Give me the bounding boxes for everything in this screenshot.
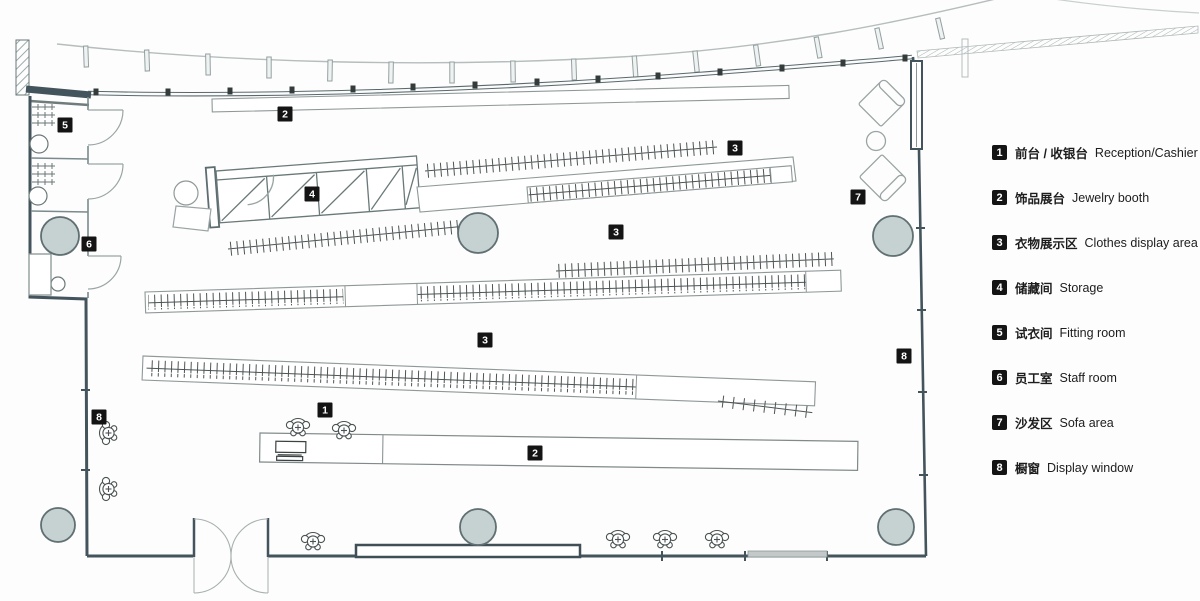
floor-plan-page: 1 2 2 3 3 3 4 5 6 7 8 8 1 前台 / 收银台 Recep… bbox=[0, 0, 1200, 601]
legend-label-en: Reception/Cashier bbox=[1095, 146, 1198, 160]
clothes-rack bbox=[142, 356, 815, 406]
clothes-rack bbox=[227, 219, 464, 256]
legend-label-zh: 沙发区 bbox=[1015, 413, 1053, 432]
legend-label-zh: 试衣间 bbox=[1015, 323, 1053, 342]
column bbox=[873, 216, 913, 256]
chair-icon bbox=[100, 421, 117, 444]
legend-label-en: Staff room bbox=[1060, 371, 1117, 385]
column bbox=[460, 509, 496, 545]
plan-marker-3: 3 bbox=[728, 141, 743, 156]
canopy-facade bbox=[57, 0, 1199, 83]
legend-item: 1 前台 / 收银台 Reception/Cashier bbox=[992, 145, 1198, 160]
legend-label-zh: 饰品展台 bbox=[1015, 188, 1065, 207]
fitting-rooms-staff-room bbox=[29, 97, 123, 298]
column bbox=[41, 508, 75, 542]
plan-marker-3c: 3 bbox=[478, 333, 493, 348]
plan-marker-8: 8 bbox=[92, 410, 107, 425]
legend-item: 2 饰品展台 Jewelry booth bbox=[992, 190, 1198, 205]
legend-marker: 2 bbox=[992, 190, 1007, 205]
plan-marker-1: 1 bbox=[318, 403, 333, 418]
legend: 1 前台 / 收银台 Reception/Cashier 2 饰品展台 Jewe… bbox=[992, 145, 1198, 475]
chair-icon bbox=[606, 531, 629, 548]
plan-marker-7: 7 bbox=[851, 190, 866, 205]
legend-marker: 7 bbox=[992, 415, 1007, 430]
sofa-table bbox=[867, 132, 886, 151]
fitting-room-doors bbox=[88, 110, 123, 289]
legend-item: 8 橱窗 Display window bbox=[992, 460, 1198, 475]
chair-icon bbox=[705, 531, 728, 548]
left-wall bbox=[30, 96, 87, 556]
legend-label-en: Storage bbox=[1060, 281, 1104, 295]
legend-label-zh: 前台 / 收银台 bbox=[1015, 143, 1088, 162]
column bbox=[458, 213, 498, 253]
chair-icon bbox=[100, 477, 117, 500]
legend-item: 5 试衣间 Fitting room bbox=[992, 325, 1198, 340]
column bbox=[878, 509, 914, 545]
plan-marker-6: 6 bbox=[82, 237, 97, 252]
legend-marker: 5 bbox=[992, 325, 1007, 340]
staff-counter bbox=[29, 254, 51, 295]
chair-icon bbox=[301, 533, 324, 550]
legend-label-en: Jewelry booth bbox=[1072, 191, 1149, 205]
stool bbox=[29, 187, 47, 205]
facade-hatch-band bbox=[917, 26, 1198, 58]
plan-marker-2b: 2 bbox=[528, 446, 543, 461]
stool bbox=[174, 181, 198, 205]
chair-icon bbox=[653, 531, 676, 548]
legend-item: 6 员工室 Staff room bbox=[992, 370, 1198, 385]
plan-marker-3b: 3 bbox=[609, 225, 624, 240]
legend-marker: 4 bbox=[992, 280, 1007, 295]
clothes-rack bbox=[145, 270, 841, 313]
sofa-area bbox=[858, 79, 907, 203]
plan-marker-2: 2 bbox=[278, 107, 293, 122]
entrance-double-door bbox=[194, 518, 268, 593]
legend-marker: 8 bbox=[992, 460, 1007, 475]
side-table bbox=[173, 206, 211, 231]
legend-label-en: Sofa area bbox=[1060, 416, 1114, 430]
legend-label-zh: 橱窗 bbox=[1015, 458, 1040, 477]
legend-label-zh: 储藏间 bbox=[1015, 278, 1053, 297]
jewelry-booth-band bbox=[212, 85, 789, 112]
legend-label-en: Clothes display area bbox=[1085, 236, 1198, 250]
column bbox=[41, 217, 79, 255]
legend-marker: 3 bbox=[992, 235, 1007, 250]
legend-item: 4 储藏间 Storage bbox=[992, 280, 1198, 295]
plan-marker-8b: 8 bbox=[897, 349, 912, 364]
canopy-mullions bbox=[83, 18, 944, 83]
sofa bbox=[859, 154, 907, 202]
legend-marker: 1 bbox=[992, 145, 1007, 160]
legend-item: 7 沙发区 Sofa area bbox=[992, 415, 1198, 430]
cash-register-icon bbox=[276, 441, 306, 460]
stool bbox=[30, 135, 48, 153]
legend-item: 3 衣物展示区 Clothes display area bbox=[992, 235, 1198, 250]
legend-label-en: Display window bbox=[1047, 461, 1133, 475]
legend-label-en: Fitting room bbox=[1060, 326, 1126, 340]
legend-label-zh: 衣物展示区 bbox=[1015, 233, 1078, 252]
sofa bbox=[858, 79, 906, 127]
display-window-right bbox=[911, 61, 922, 149]
plan-marker-5: 5 bbox=[58, 118, 73, 133]
legend-marker: 6 bbox=[992, 370, 1007, 385]
plan-marker-4: 4 bbox=[305, 187, 320, 202]
legend-label-zh: 员工室 bbox=[1015, 368, 1053, 387]
stool bbox=[51, 277, 65, 291]
